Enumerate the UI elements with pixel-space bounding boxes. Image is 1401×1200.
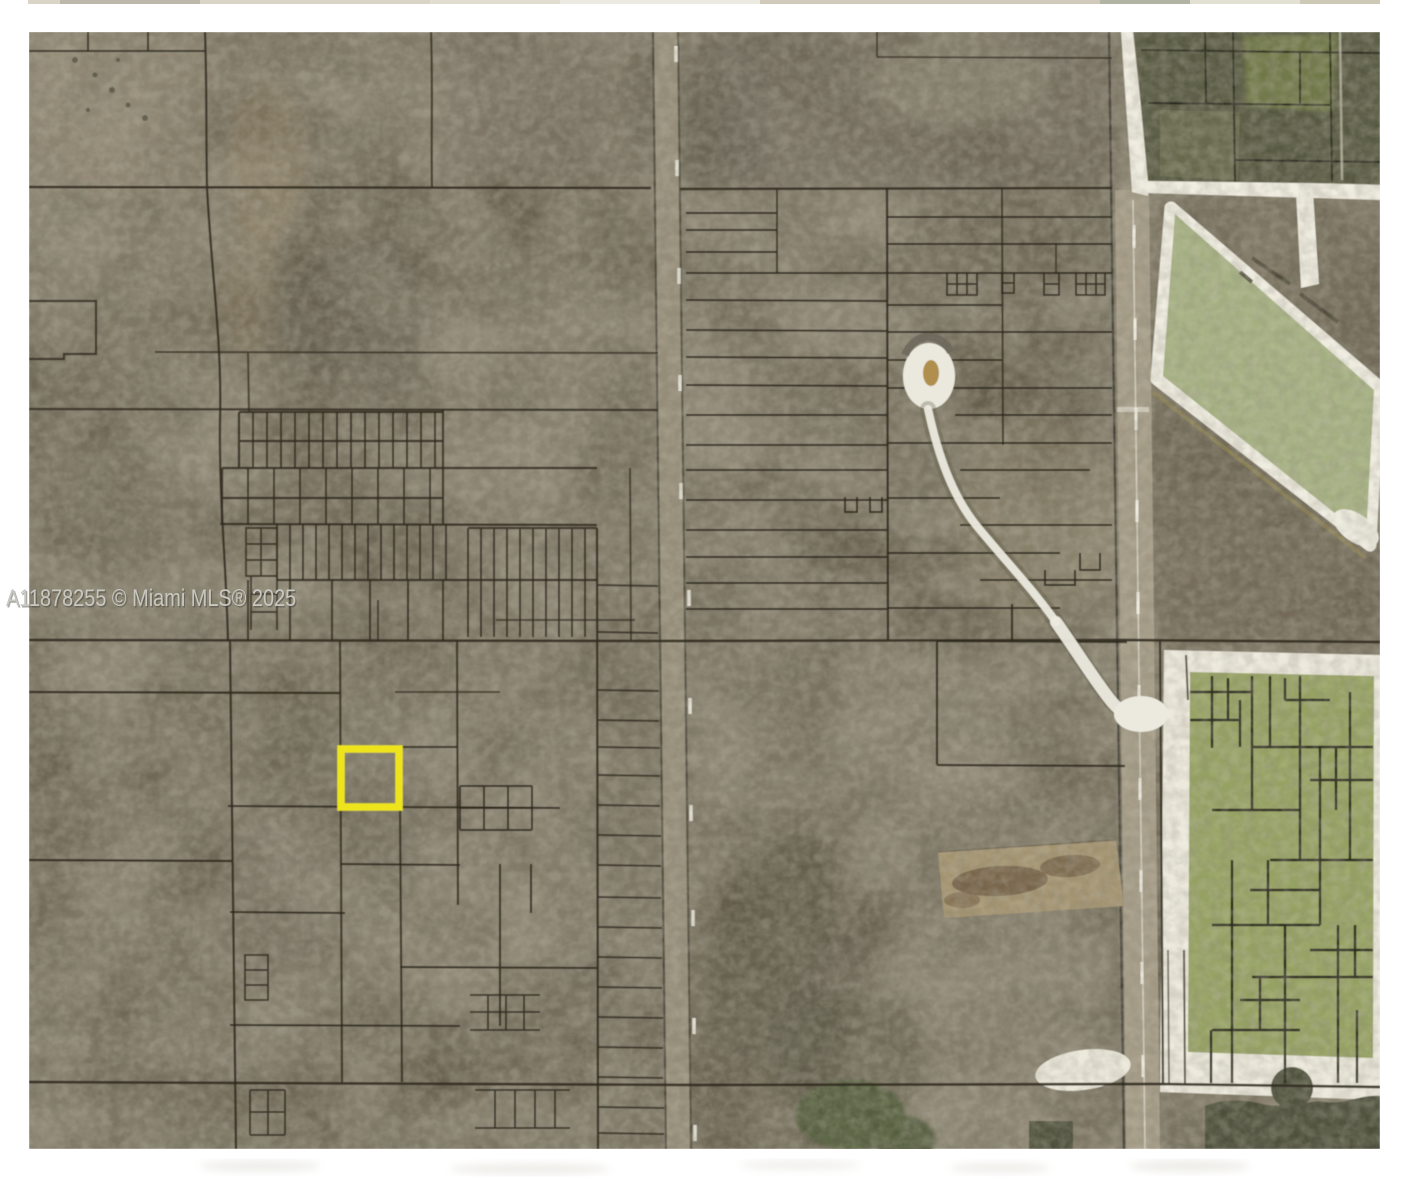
svg-text:A11878255 © Miami MLS® 2025: A11878255 © Miami MLS® 2025: [6, 584, 296, 611]
